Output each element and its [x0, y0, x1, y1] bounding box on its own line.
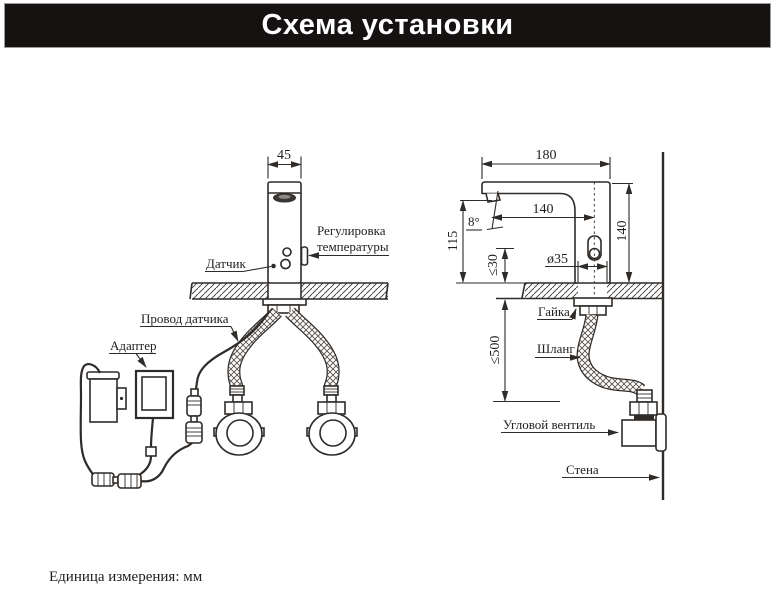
supply-hoses: [234, 312, 333, 387]
temp-adjust-callout: Регулировка температуры: [309, 223, 389, 256]
aerator-highlight: [279, 195, 291, 199]
side-view: 180 140 8° 115 140: [446, 148, 666, 500]
sensor-callout: Датчик: [205, 256, 276, 272]
sensor-label: Датчик: [206, 256, 246, 271]
dim-le30-label: ≤30: [486, 254, 501, 276]
dim-width-label: 45: [277, 148, 291, 163]
wall-flange: [656, 414, 666, 451]
countertop-front: [190, 283, 388, 299]
angle-valve-label: Угловой вентиль: [503, 417, 595, 432]
dim-total-length: 180: [482, 148, 610, 179]
valve-body: [622, 420, 656, 446]
dim-le500-label: ≤500: [488, 336, 503, 365]
shank-flange-side: [574, 298, 612, 306]
hose-label: Шланг: [537, 341, 575, 356]
angle-valve-callout: Угловой вентиль: [501, 417, 618, 433]
shank-washer: [263, 299, 306, 305]
installation-scheme-page: Схема установки 45: [0, 0, 779, 600]
hose-end-right: [307, 386, 357, 455]
hose-end-left: [214, 386, 264, 455]
wall-callout: Стена: [562, 462, 659, 478]
dim-o35-label: ø35: [547, 252, 568, 267]
power-plug: [87, 372, 126, 422]
dim-140v-label: 140: [615, 221, 630, 242]
hose-side: [583, 315, 641, 390]
dim-spout-angle: 8°: [466, 214, 482, 230]
nut-callout: Гайка: [537, 304, 576, 320]
adapter-cord-lower: [139, 456, 151, 475]
dim-overall-height: 140: [612, 184, 633, 283]
temperature-lever: [302, 247, 308, 265]
units-note: Единица измерения: мм: [49, 569, 202, 586]
adapter-callout: Адаптер: [109, 338, 157, 367]
angle-valve: [622, 390, 666, 451]
adapter-box: [136, 371, 173, 418]
temp-label-line2: температуры: [317, 239, 389, 254]
hose-callout: Шланг: [535, 341, 580, 358]
cable-connector-stack: [186, 389, 202, 443]
temp-label-line1: Регулировка: [317, 223, 386, 238]
sensor-leader-dot: [271, 264, 276, 269]
mounting-nut-side: [580, 306, 606, 315]
sensor-wire-callout: Провод датчика: [140, 311, 238, 341]
dim-angle-label: 8°: [468, 214, 480, 229]
nut-label: Гайка: [538, 304, 570, 319]
dim-deck-thickness: ≤30: [486, 249, 514, 283]
adapter-cord-upper: [151, 418, 153, 447]
adapter-label: Адаптер: [110, 338, 157, 353]
sensor-wire-label: Провод датчика: [141, 311, 229, 326]
installation-diagram: 45 Регулировка температуры Датчик: [0, 0, 779, 600]
front-view: 45 Регулировка температуры Датчик: [81, 148, 389, 488]
cord-bead: [146, 447, 156, 456]
countertop-side: [456, 283, 663, 299]
inline-connector-pair: [92, 473, 141, 488]
faucet-body-side: [482, 182, 610, 298]
dim-115-label: 115: [446, 231, 461, 251]
dim-width-45: 45: [268, 148, 301, 179]
dim-140h-label: 140: [533, 202, 554, 217]
dim-180-label: 180: [536, 148, 557, 163]
wall-label: Стена: [566, 462, 599, 477]
